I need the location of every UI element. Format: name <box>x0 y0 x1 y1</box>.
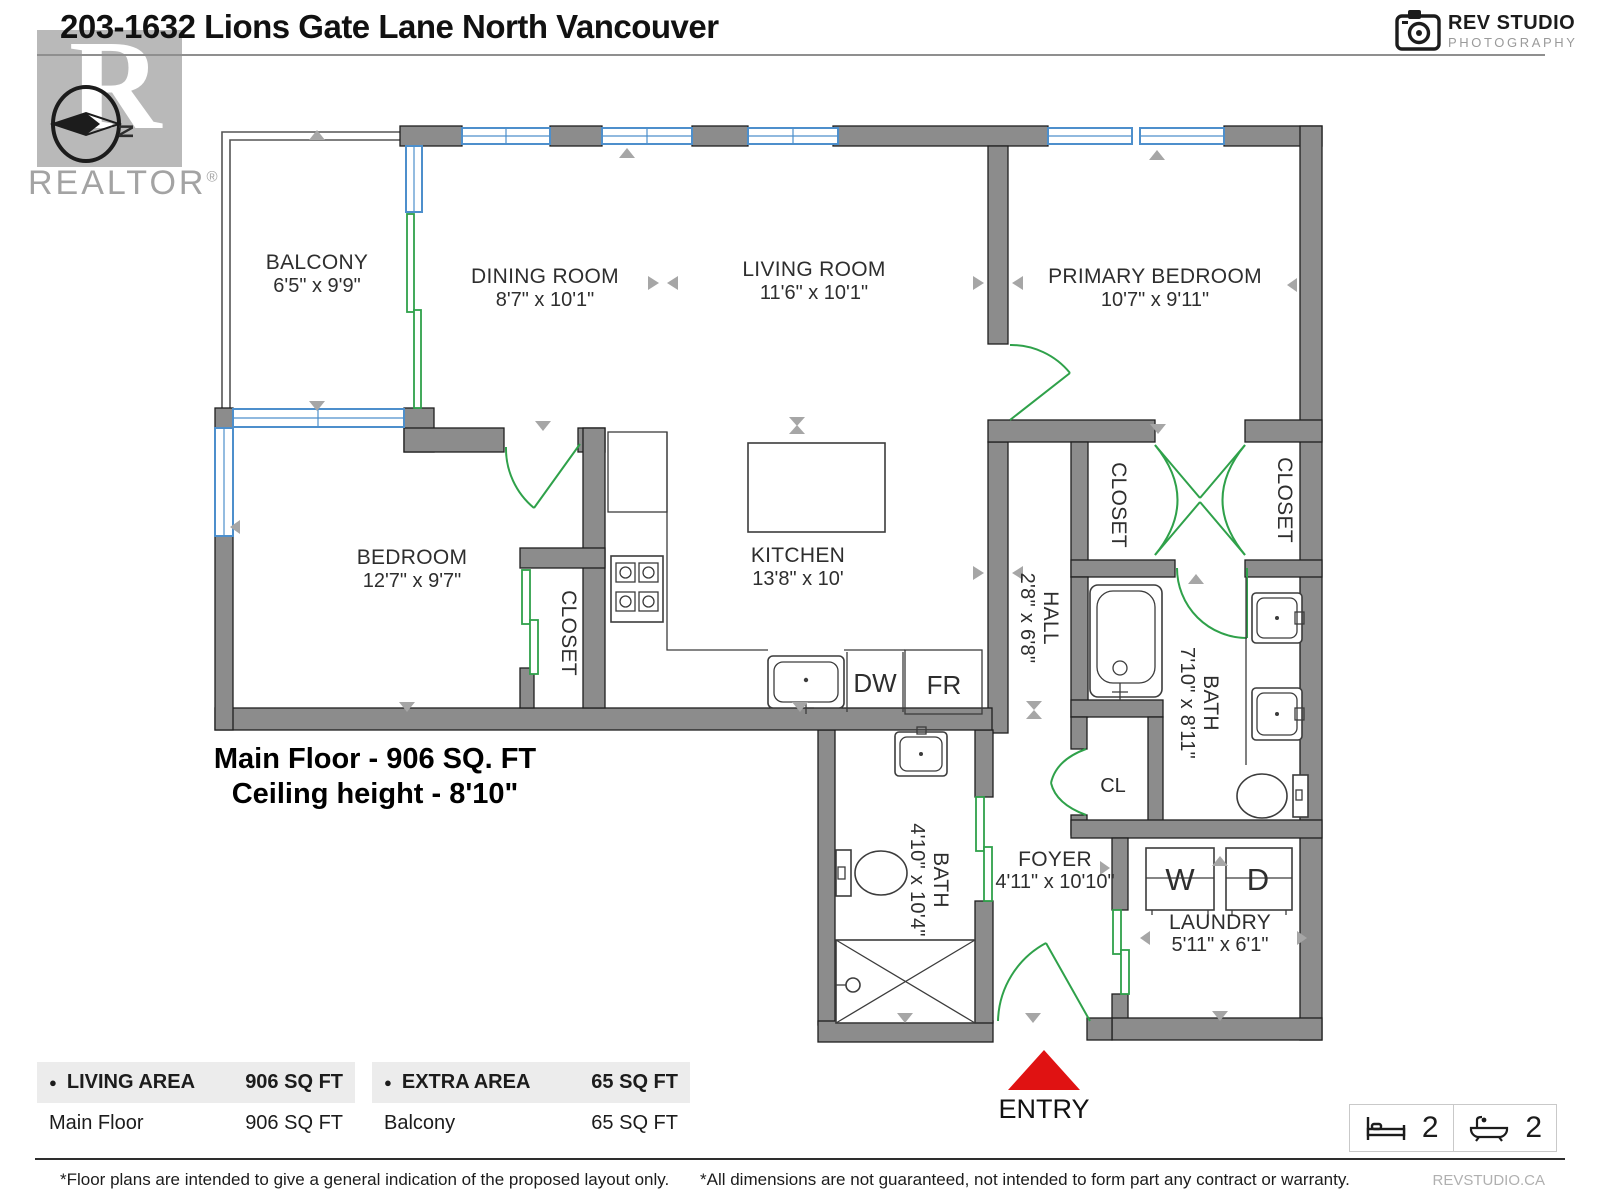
room-label-kitchen: KITCHEN <box>751 544 845 567</box>
entry-arrow <box>1008 1050 1080 1090</box>
room-dims-kitchen: 13'8" x 10' <box>752 568 843 590</box>
living-area-table: ● LIVING AREA 906 SQ FT Main Floor 906 S… <box>37 1062 355 1139</box>
room-label-hall: HALL2'8" x 6'8" <box>1016 573 1062 664</box>
appliance-label-w: W <box>1165 862 1195 897</box>
room-label-bath-2nd: BATH4'10" x 10'4" <box>906 823 952 937</box>
bullet-icon: ● <box>49 1075 57 1090</box>
bath-sink-icons <box>1252 593 1304 740</box>
shower-icon <box>836 940 975 1023</box>
bullet-icon: ● <box>384 1075 392 1090</box>
extra-area-row-label: Balcony <box>384 1112 455 1135</box>
room-dims-hall: 2'8" x 6'8" <box>1016 573 1038 664</box>
room-dims-primary: 10'7" x 9'11" <box>1101 289 1209 311</box>
bedroom-count: 2 <box>1422 1111 1439 1145</box>
kitchen-island <box>748 443 885 532</box>
floorplan-page: R N REALTOR® 203-1632 Lions Gate Lane No… <box>0 0 1600 1200</box>
bathtub-icon <box>1090 585 1162 700</box>
kitchen-sink-icon <box>768 656 844 714</box>
floor-note-line1: Main Floor - 906 SQ. FT <box>214 743 537 775</box>
floor-note-line2: Ceiling height - 8'10" <box>232 778 519 810</box>
living-area-total: 906 SQ FT <box>245 1071 343 1094</box>
room-dims-bedroom: 12'7" x 9'7" <box>363 570 462 592</box>
room-label-primary: PRIMARY BEDROOM <box>1048 265 1262 288</box>
toilet-icon-2nd <box>836 850 907 896</box>
bathroom-count: 2 <box>1525 1111 1542 1145</box>
living-area-row: Main Floor 906 SQ FT <box>37 1103 355 1139</box>
toilet-icon-main <box>1237 774 1308 818</box>
room-label-cl: CL <box>1100 775 1126 797</box>
living-area-title: LIVING AREA <box>67 1071 195 1094</box>
floorplan-drawing: BALCONY 6'5" x 9'9" DINING ROOM 8'7" x 1… <box>0 0 1600 1200</box>
extra-area-total: 65 SQ FT <box>591 1071 678 1094</box>
stove-icon <box>611 556 663 622</box>
room-label-bath-main: BATH7'10" x 8'11" <box>1176 647 1222 759</box>
room-label-bedroom-closet: CLOSET <box>557 590 580 676</box>
room-label-foyer: FOYER <box>1018 848 1092 871</box>
living-area-header: ● LIVING AREA 906 SQ FT <box>37 1062 355 1103</box>
entry-label: ENTRY <box>998 1094 1089 1124</box>
extra-area-table: ● EXTRA AREA 65 SQ FT Balcony 65 SQ FT <box>372 1062 690 1139</box>
bedroom-count-cell: 2 <box>1350 1105 1453 1151</box>
room-dims-bath-2nd: 4'10" x 10'4" <box>906 823 928 937</box>
room-dims-foyer: 4'11" x 10'10" <box>995 871 1114 893</box>
appliance-label-dw: DW <box>853 668 897 698</box>
appliance-label-d: D <box>1247 862 1269 897</box>
room-label-laundry: LAUNDRY <box>1169 911 1271 934</box>
room-dims-dining: 8'7" x 10'1" <box>496 289 595 311</box>
room-dims-bath-main: 7'10" x 8'11" <box>1176 647 1198 759</box>
room-label-living: LIVING ROOM <box>742 258 885 281</box>
bath-icon <box>1467 1114 1511 1142</box>
room-dims-laundry: 5'11" x 6'1" <box>1171 934 1268 956</box>
bath2-sink-icon <box>895 727 947 776</box>
room-label-dining: DINING ROOM <box>471 265 619 288</box>
bathroom-count-cell: 2 <box>1453 1105 1557 1151</box>
footer-site: REVSTUDIO.CA <box>1400 1172 1545 1189</box>
bed-icon <box>1364 1114 1408 1142</box>
room-label-bedroom: BEDROOM <box>357 546 468 569</box>
room-label-balcony: BALCONY <box>266 251 368 274</box>
bed-bath-summary: 2 2 <box>1349 1104 1557 1152</box>
room-dims-balcony: 6'5" x 9'9" <box>273 275 360 297</box>
footer-note-left: *Floor plans are intended to give a gene… <box>60 1170 669 1190</box>
extra-area-row: Balcony 65 SQ FT <box>372 1103 690 1139</box>
footer-note-right: *All dimensions are not guaranteed, not … <box>700 1170 1350 1190</box>
living-area-row-label: Main Floor <box>49 1112 143 1135</box>
extra-area-title: EXTRA AREA <box>402 1071 531 1094</box>
living-area-row-value: 906 SQ FT <box>245 1112 343 1135</box>
extra-area-header: ● EXTRA AREA 65 SQ FT <box>372 1062 690 1103</box>
footer-divider <box>35 1158 1565 1160</box>
room-label-closet-left: CLOSET <box>1107 462 1130 548</box>
extra-area-row-value: 65 SQ FT <box>591 1112 678 1135</box>
room-dims-living: 11'6" x 10'1" <box>760 282 868 304</box>
room-label-closet-right: CLOSET <box>1273 457 1296 543</box>
appliance-label-fr: FR <box>927 670 962 700</box>
